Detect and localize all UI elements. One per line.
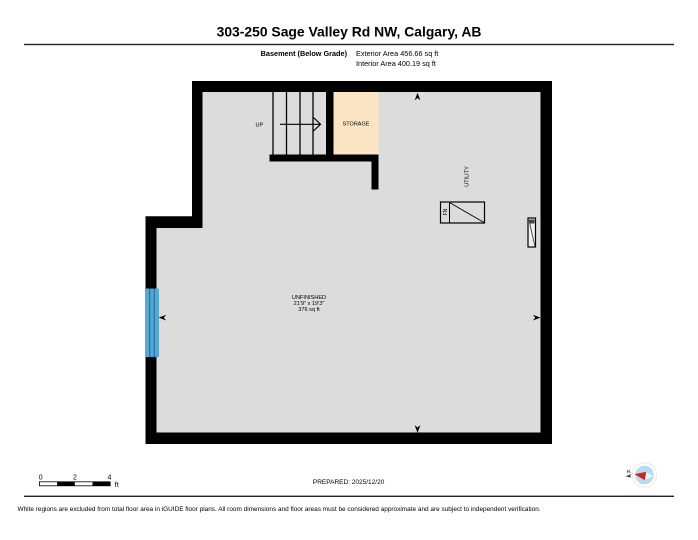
svg-text:PREPARED: 2025/12/20: PREPARED: 2025/12/20: [313, 479, 385, 486]
svg-text:UP: UP: [255, 122, 263, 128]
svg-text:0: 0: [39, 474, 43, 481]
svg-text:Interior Area 400.19 sq ft: Interior Area 400.19 sq ft: [356, 59, 436, 68]
svg-text:STORAGE: STORAGE: [343, 121, 370, 127]
svg-text:Basement (Below Grade): Basement (Below Grade): [261, 49, 348, 58]
svg-text:UTILITY: UTILITY: [465, 166, 471, 187]
svg-text:White regions are excluded fro: White regions are excluded from total fl…: [18, 506, 541, 513]
svg-text:21'9" x 19'3": 21'9" x 19'3": [294, 301, 325, 307]
svg-text:ft: ft: [115, 482, 119, 489]
svg-text:4: 4: [108, 474, 112, 481]
svg-text:Exterior Area 456.66 sq ft: Exterior Area 456.66 sq ft: [356, 49, 438, 58]
svg-text:376 sq ft: 376 sq ft: [298, 307, 320, 313]
svg-text:303-250 Sage Valley Rd NW, Cal: 303-250 Sage Valley Rd NW, Calgary, AB: [217, 23, 482, 39]
svg-text:UNFINISHED: UNFINISHED: [292, 295, 326, 301]
svg-text:2: 2: [73, 474, 77, 481]
svg-text:FN: FN: [443, 208, 449, 215]
